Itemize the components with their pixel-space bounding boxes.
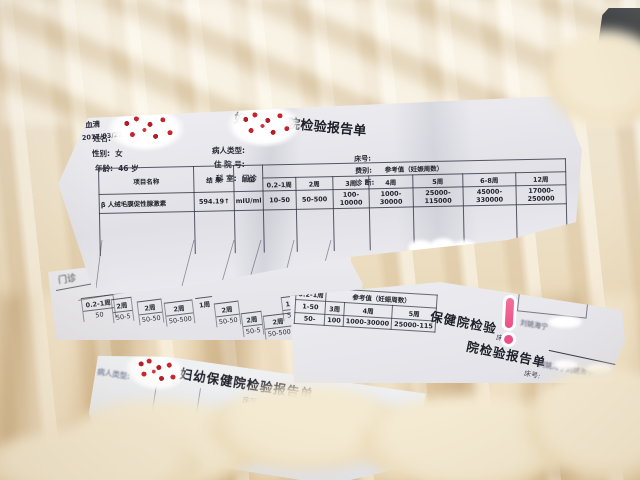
week-header: 4周 — [369, 175, 413, 189]
exclamation-bar — [505, 298, 515, 328]
mid-hospital-fragment: 保健院检验 — [429, 306, 499, 338]
fragment-value: 50-5 — [113, 311, 133, 323]
week-header: 6-8周 — [463, 173, 516, 187]
ref-range: 45000-330000 — [463, 186, 516, 206]
stacked-sheet-fragment: 2周 50-5 — [241, 311, 265, 337]
week-header: 3周 — [333, 176, 369, 190]
fragment-value: 50-500 — [166, 313, 194, 326]
ref-range: 1000-30000 — [369, 188, 413, 208]
ref-range: 25000-115000 — [413, 187, 463, 207]
week-header: 0.2-1周 — [263, 177, 296, 191]
ref-range: 17000-250000 — [516, 185, 566, 205]
fragment-value: 50-500 — [265, 326, 293, 339]
pink-exclamation-sticker-icon — [499, 296, 522, 349]
mid-ref-value: 100 — [324, 314, 343, 326]
mid-examiner-names: 刘姚海宁 — [519, 318, 548, 333]
mid-bed-label-2: 床号: — [523, 369, 541, 382]
week-header: 5周 — [413, 174, 463, 188]
stacked-sheet-fragment: 2周 50-50 — [214, 301, 242, 328]
dept-stamp-fragment: 门诊 — [57, 271, 77, 286]
fragment-value: 50-50 — [139, 313, 163, 326]
col-item-header: 项目名称 — [99, 166, 195, 194]
stacked-sheet-fragment: 2周 50-50 — [137, 299, 165, 326]
white-censor-blob — [548, 316, 582, 328]
ref-range: 50-500 — [296, 190, 333, 210]
stacked-sheet-fragment: 1周 — [195, 296, 214, 313]
mid-week-header: 3周 — [325, 301, 344, 315]
fragment-value: 50-5 — [243, 325, 263, 337]
fragment-value: 50-50 — [216, 315, 240, 328]
stacked-sheet-fragment: 2周 50-5 — [111, 297, 135, 323]
week-header: 12周 — [516, 172, 566, 186]
stacked-sheet-fragment: 2周 50-500 — [164, 299, 196, 326]
test-result-value: 594.19↑ — [194, 192, 234, 212]
photo-scene: 妇幼保健院检验报告单 病人类型: 床号: 费别: 2-1周 50 门诊 0.2-… — [0, 0, 640, 480]
mid-ref-value: 1000-30000 — [343, 315, 392, 329]
white-censor-blob — [552, 360, 578, 370]
exclamation-dot — [504, 335, 513, 344]
test-unit: mIU/ml — [234, 191, 263, 211]
week-header: 2周 — [296, 177, 333, 191]
ref-range: 10-50 — [263, 190, 296, 210]
col-unit-header: 单位 — [233, 165, 262, 192]
ref-range: 100-10000 — [333, 189, 369, 209]
test-item-name: β 人绒毛膜促性腺激素 — [99, 192, 194, 213]
col-result-header: 结 果 — [193, 166, 234, 193]
mid-ref-value: 50- — [294, 312, 325, 325]
